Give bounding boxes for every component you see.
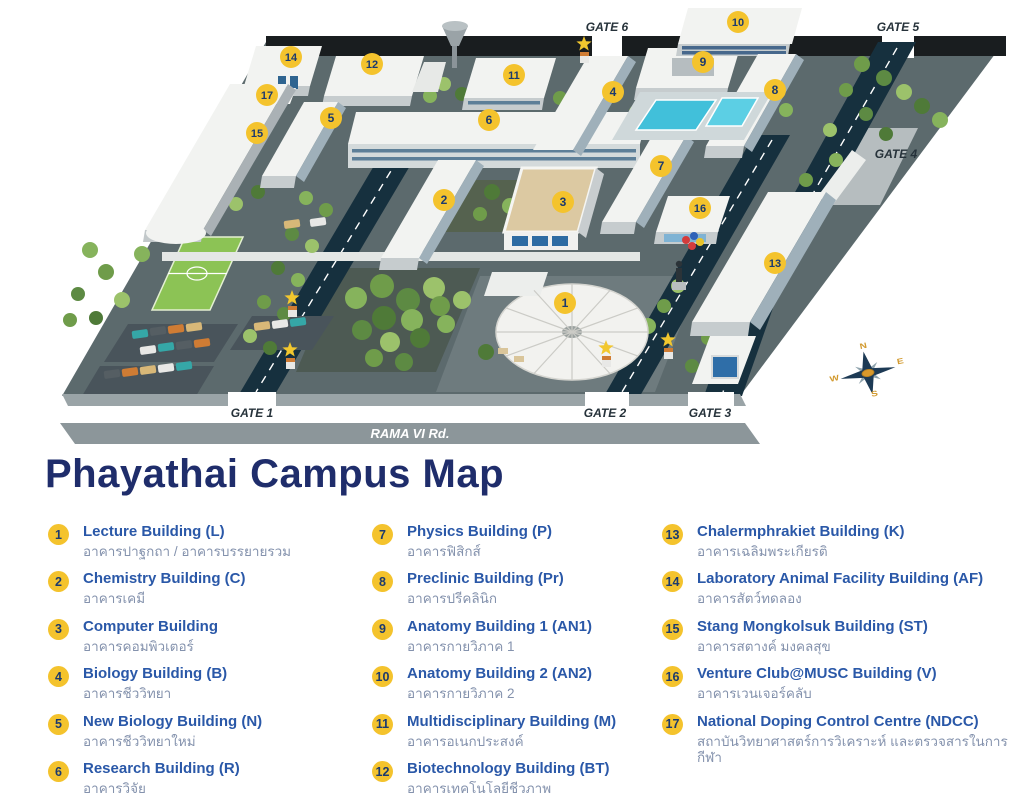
legend-building-name-th: อาคารชีววิทยา: [83, 686, 227, 702]
legend-number-badge: 9: [372, 619, 393, 640]
legend-number-badge: 6: [48, 761, 69, 782]
legend-item-6: 6Research Building (R)อาคารวิจัย: [48, 761, 352, 797]
map-marker-13: 13: [764, 252, 786, 274]
legend-text: Biology Building (B)อาคารชีววิทยา: [83, 666, 227, 702]
legend-item-12: 12Biotechnology Building (BT)อาคารเทคโนโ…: [372, 761, 650, 797]
tree: [839, 83, 853, 97]
front-sidewalk: [62, 394, 746, 406]
tree: [453, 291, 471, 309]
legend-building-name-th: สถาบันวิทยาศาสตร์การวิเคราะห์ และตรวจสาร…: [697, 734, 1018, 767]
map-marker-11: 11: [503, 64, 525, 86]
compass-letter-n: N: [859, 341, 868, 351]
tree: [305, 239, 319, 253]
gate1-opening: [228, 392, 276, 407]
gate2-opening: [585, 392, 629, 407]
legend-building-name-th: อาคารวิจัย: [83, 781, 240, 797]
legend-building-name-th: อาคารกายวิภาค 2: [407, 686, 592, 702]
legend-building-name-en: Preclinic Building (Pr): [407, 571, 564, 588]
tree: [285, 227, 299, 241]
tree: [823, 123, 837, 137]
tree: [63, 313, 77, 327]
svg-text:5: 5: [328, 111, 335, 125]
tree: [243, 329, 257, 343]
legend-building-name-en: Chemistry Building (C): [83, 571, 246, 588]
map-marker-3: 3: [552, 191, 574, 213]
gate-label-gate-6: GATE 6: [586, 20, 629, 34]
tree: [685, 359, 699, 373]
gate-label-gate-2: GATE 2: [584, 406, 627, 420]
sculpture-ball: [682, 236, 690, 244]
legend-item-16: 16Venture Club@MUSC Building (V)อาคารเวน…: [662, 666, 1018, 702]
tree: [98, 264, 114, 280]
tree: [401, 309, 423, 331]
svg-text:8: 8: [772, 83, 779, 97]
legend-text: Lecture Building (L)อาคารปาฐกถา / อาคารบ…: [83, 524, 291, 560]
legend-building-name-en: New Biology Building (N): [83, 714, 262, 731]
map-marker-6: 6: [478, 109, 500, 131]
legend-text: Biotechnology Building (BT)อาคารเทคโนโลย…: [407, 761, 609, 797]
map-marker-1: 1: [554, 292, 576, 314]
legend-text: Chemistry Building (C)อาคารเคมี: [83, 571, 246, 607]
legend-item-17: 17National Doping Control Centre (NDCC)ส…: [662, 714, 1018, 767]
legend-item-2: 2Chemistry Building (C)อาคารเคมี: [48, 571, 352, 607]
legend-number-badge: 3: [48, 619, 69, 640]
map-marker-7: 7: [650, 155, 672, 177]
legend-building-name-th: อาคารฟิสิกส์: [407, 544, 552, 560]
tree: [430, 296, 450, 316]
gate3-opening: [688, 392, 734, 407]
tree: [859, 107, 873, 121]
tree: [396, 288, 420, 312]
legend-building-name-th: อาคารเทคโนโลยีชีวภาพ: [407, 781, 609, 797]
legend-building-name-en: Anatomy Building 2 (AN2): [407, 666, 592, 683]
sculpture-ball: [688, 242, 696, 250]
legend-text: Venture Club@MUSC Building (V)อาคารเวนเจ…: [697, 666, 937, 702]
page-title: Phayathai Campus Map: [45, 452, 504, 497]
legend-building-name-th: อาคารเวนเจอร์คลับ: [697, 686, 937, 702]
legend-text: Stang Mongkolsuk Building (ST)อาคารสตางค…: [697, 619, 928, 655]
legend-column-3: 13Chalermphrakiet Building (K)อาคารเฉลิม…: [662, 524, 1018, 778]
map-marker-12: 12: [361, 53, 383, 75]
tree: [257, 295, 271, 309]
legend-building-name-en: National Doping Control Centre (NDCC): [697, 714, 1018, 731]
tree: [829, 153, 843, 167]
svg-text:15: 15: [251, 128, 263, 140]
tree: [395, 353, 413, 371]
legend-building-name-en: Research Building (R): [83, 761, 240, 778]
legend-text: Computer Buildingอาคารคอมพิวเตอร์: [83, 619, 218, 655]
kiosk-building: [484, 272, 548, 296]
tree: [370, 274, 394, 298]
legend-building-name-en: Multidisciplinary Building (M): [407, 714, 616, 731]
map-marker-9: 9: [692, 51, 714, 73]
tree: [345, 287, 367, 309]
page: { "page": { "title": "Phayathai Campus M…: [0, 0, 1024, 811]
legend-item-4: 4Biology Building (B)อาคารชีววิทยา: [48, 666, 352, 702]
map-marker-8: 8: [764, 79, 786, 101]
legend-text: Research Building (R)อาคารวิจัย: [83, 761, 240, 797]
compass-letter-e: E: [896, 356, 904, 366]
tree: [134, 246, 150, 262]
legend-text: Anatomy Building 1 (AN1)อาคารกายวิภาค 1: [407, 619, 592, 655]
gate6-opening: [592, 34, 622, 58]
legend-text: Preclinic Building (Pr)อาคารปรีคลินิก: [407, 571, 564, 607]
legend-number-badge: 2: [48, 571, 69, 592]
tree: [896, 84, 912, 100]
legend-number-badge: 7: [372, 524, 393, 545]
legend-item-10: 10Anatomy Building 2 (AN2)อาคารกายวิภาค …: [372, 666, 650, 702]
legend-number-badge: 1: [48, 524, 69, 545]
map-marker-16: 16: [689, 197, 711, 219]
tree: [82, 242, 98, 258]
svg-text:9: 9: [700, 55, 707, 69]
bench: [498, 348, 508, 354]
sculpture-ball: [690, 232, 698, 240]
legend-building-name-th: อาคารคอมพิวเตอร์: [83, 639, 218, 655]
legend-item-1: 1Lecture Building (L)อาคารปาฐกถา / อาคาร…: [48, 524, 352, 560]
tree: [879, 127, 893, 141]
legend-column-2: 7Physics Building (P)อาคารฟิสิกส์8Precli…: [372, 524, 650, 808]
svg-text:12: 12: [366, 59, 378, 71]
map-marker-4: 4: [602, 81, 624, 103]
legend-building-name-en: Physics Building (P): [407, 524, 552, 541]
svg-text:4: 4: [610, 85, 617, 99]
legend-building-name-en: Computer Building: [83, 619, 218, 636]
legend-building-name-en: Laboratory Animal Facility Building (AF): [697, 571, 983, 588]
tree: [473, 207, 487, 221]
tree: [799, 173, 813, 187]
bench: [514, 356, 524, 362]
legend-column-1: 1Lecture Building (L)อาคารปาฐกถา / อาคาร…: [48, 524, 352, 808]
svg-text:13: 13: [769, 258, 781, 270]
tree: [932, 112, 948, 128]
legend-building-name-th: อาคารชีววิทยาใหม่: [83, 734, 262, 750]
legend-number-badge: 4: [48, 666, 69, 687]
legend-item-15: 15Stang Mongkolsuk Building (ST)อาคารสตา…: [662, 619, 1018, 655]
compass-rose: NESW: [823, 334, 909, 406]
legend-number-badge: 13: [662, 524, 683, 545]
legend-text: Chalermphrakiet Building (K)อาคารเฉลิมพร…: [697, 524, 905, 560]
legend-number-badge: 11: [372, 714, 393, 735]
legend-text: National Doping Control Centre (NDCC)สถา…: [697, 714, 1018, 767]
legend-building-name-th: อาคารอเนกประสงค์: [407, 734, 616, 750]
legend-number-badge: 10: [372, 666, 393, 687]
map-marker-5: 5: [320, 107, 342, 129]
tree: [657, 299, 671, 313]
legend-item-9: 9Anatomy Building 1 (AN1)อาคารกายวิภาค 1: [372, 619, 650, 655]
legend-building-name-th: อาคารสัตว์ทดลอง: [697, 591, 983, 607]
svg-text:2: 2: [441, 193, 448, 207]
tree: [410, 328, 430, 348]
map-marker-2: 2: [433, 189, 455, 211]
compass-letter-s: S: [870, 389, 878, 399]
tree: [89, 311, 103, 325]
tree: [437, 315, 455, 333]
legend-text: Multidisciplinary Building (M)อาคารอเนกป…: [407, 714, 616, 750]
legend-number-badge: 12: [372, 761, 393, 782]
sculpture-ball: [696, 238, 704, 246]
legend-item-7: 7Physics Building (P)อาคารฟิสิกส์: [372, 524, 650, 560]
gate-label-gate-1: GATE 1: [231, 406, 274, 420]
statue: [676, 268, 682, 282]
legend-item-8: 8Preclinic Building (Pr)อาคารปรีคลินิก: [372, 571, 650, 607]
legend-number-badge: 17: [662, 714, 683, 735]
tree: [365, 349, 383, 367]
svg-text:7: 7: [658, 159, 665, 173]
svg-text:11: 11: [508, 70, 520, 82]
tree: [319, 203, 333, 217]
tree: [484, 184, 500, 200]
map-marker-15: 15: [246, 122, 268, 144]
legend-item-11: 11Multidisciplinary Building (M)อาคารอเน…: [372, 714, 650, 750]
tree: [854, 56, 870, 72]
statue-pedestal: [672, 282, 686, 290]
legend-building-name-th: อาคารเคมี: [83, 591, 246, 607]
tree: [263, 341, 277, 355]
legend-number-badge: 15: [662, 619, 683, 640]
legend-building-name-en: Chalermphrakiet Building (K): [697, 524, 905, 541]
legend-building-name-th: อาคารปรีคลินิก: [407, 591, 564, 607]
tree: [423, 277, 445, 299]
legend-item-14: 14Laboratory Animal Facility Building (A…: [662, 571, 1018, 607]
tree: [352, 320, 372, 340]
tree: [380, 332, 400, 352]
svg-text:17: 17: [261, 90, 273, 102]
legend-building-name-en: Biotechnology Building (BT): [407, 761, 609, 778]
svg-text:1: 1: [562, 296, 569, 310]
legend-building-name-en: Lecture Building (L): [83, 524, 291, 541]
legend-number-badge: 16: [662, 666, 683, 687]
legend-text: Physics Building (P)อาคารฟิสิกส์: [407, 524, 552, 560]
legend-building-name-th: อาคารสตางค์ มงคลสุข: [697, 639, 928, 655]
tree: [914, 98, 930, 114]
tree: [372, 306, 396, 330]
tree: [114, 292, 130, 308]
tree: [779, 103, 793, 117]
legend-text: Laboratory Animal Facility Building (AF)…: [697, 571, 983, 607]
legend-item-5: 5New Biology Building (N)อาคารชีววิทยาให…: [48, 714, 352, 750]
tree: [291, 273, 305, 287]
legend-item-3: 3Computer Buildingอาคารคอมพิวเตอร์: [48, 619, 352, 655]
compass-letter-w: W: [829, 373, 841, 384]
tree: [478, 344, 494, 360]
svg-text:6: 6: [486, 113, 493, 127]
legend-number-badge: 8: [372, 571, 393, 592]
legend-building-name-en: Biology Building (B): [83, 666, 227, 683]
map-marker-17: 17: [256, 84, 278, 106]
legend-text: New Biology Building (N)อาคารชีววิทยาใหม…: [83, 714, 262, 750]
map-marker-10: 10: [727, 11, 749, 33]
gate-label-gate-3: GATE 3: [689, 406, 732, 420]
map-bottom-strip: RAMA VI Rd.: [60, 392, 760, 444]
legend-item-13: 13Chalermphrakiet Building (K)อาคารเฉลิม…: [662, 524, 1018, 560]
svg-text:10: 10: [732, 17, 744, 29]
svg-text:3: 3: [560, 195, 567, 209]
legend-building-name-th: อาคารเฉลิมพระเกียรติ: [697, 544, 905, 560]
map-marker-14: 14: [280, 46, 302, 68]
campus-map-svg: RAMA VI Rd. GATE 1GATE 2GATE 3GATE 4GATE…: [0, 0, 1024, 450]
legend-building-name-en: Venture Club@MUSC Building (V): [697, 666, 937, 683]
legend-number-badge: 14: [662, 571, 683, 592]
tree: [71, 287, 85, 301]
legend-text: Anatomy Building 2 (AN2)อาคารกายวิภาค 2: [407, 666, 592, 702]
gate-label-gate-4: GATE 4: [875, 147, 918, 161]
legend-building-name-en: Anatomy Building 1 (AN1): [407, 619, 592, 636]
rama-road-label: RAMA VI Rd.: [371, 426, 450, 441]
legend-building-name-th: อาคารปาฐกถา / อาคารบรรยายรวม: [83, 544, 291, 560]
legend-building-name-en: Stang Mongkolsuk Building (ST): [697, 619, 928, 636]
tree: [876, 70, 892, 86]
campus-map: RAMA VI Rd. GATE 1GATE 2GATE 3GATE 4GATE…: [0, 0, 1024, 450]
tree: [299, 191, 313, 205]
gate-label-gate-5: GATE 5: [877, 20, 920, 34]
legend-building-name-th: อาคารกายวิภาค 1: [407, 639, 592, 655]
svg-text:14: 14: [285, 52, 298, 64]
legend-number-badge: 5: [48, 714, 69, 735]
svg-text:16: 16: [694, 203, 706, 215]
tree: [271, 261, 285, 275]
